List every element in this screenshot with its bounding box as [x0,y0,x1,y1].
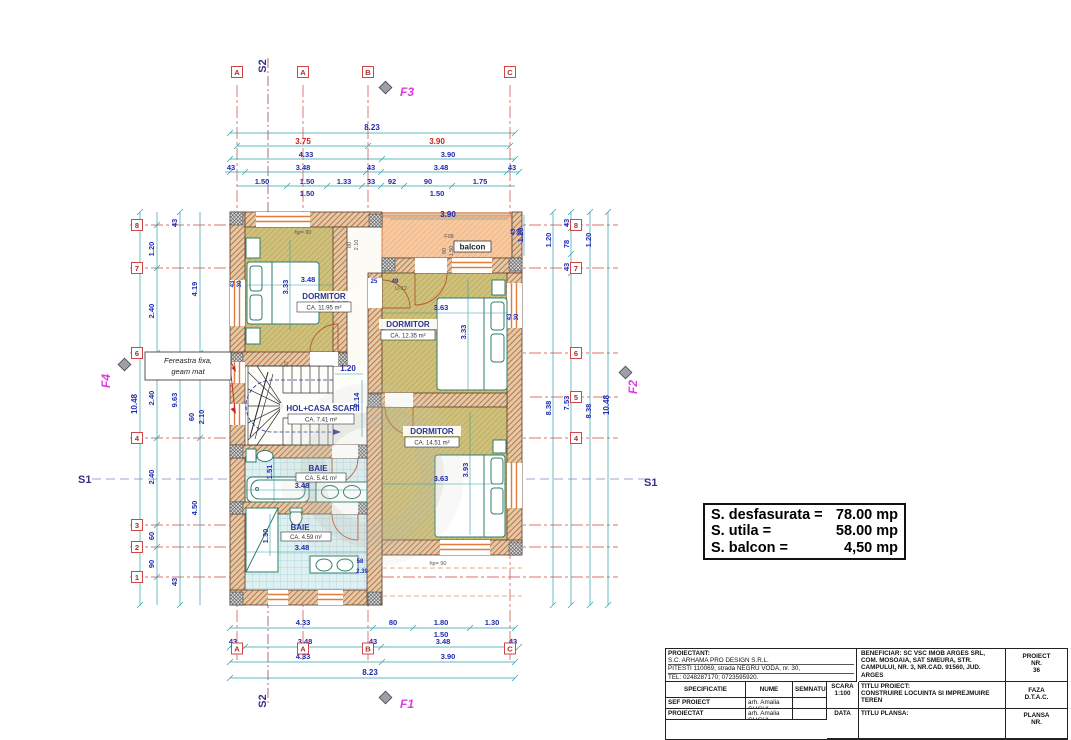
faza-label: FAZA [1028,687,1044,694]
proiectant-label: PROIECTANT: [668,650,710,657]
door-code: U-12 [395,286,407,292]
summary-value: 78.00 mp [836,507,898,523]
room-area: CA. 14.51 m² [414,441,449,447]
dim-label: 1.80 [434,618,449,627]
dim-label: 3.33 [459,325,468,340]
dim-label: 60 [147,532,156,540]
marker-f2-label: F2 [626,380,640,394]
dim-label: 2.10 [197,410,206,425]
dim-label: 2.40 [147,470,156,485]
dim-label: 43 [562,263,571,271]
dim-label: 3.90 [429,137,445,146]
faza-value: D.T.A.C. [1025,694,1049,701]
row-sef-signature [793,698,827,709]
grid-bubble-label: A [300,68,306,77]
proiect-nr-cell: PROIECT NR. 36 [1006,649,1067,682]
note-line-1: Fereastra fixa, [164,356,212,365]
room-area: CA. 11.95 m² [307,306,342,312]
wall-tag: 2.39 [356,569,368,575]
dim-label: 4.19 [190,282,199,297]
grid-bubble-label: 6 [135,349,139,358]
dim-label: 90 [147,560,156,568]
marker-s1-left-label: S1 [78,474,91,486]
titlu-proiect-line: TEREN [861,697,882,704]
grid-bubble-label: B [365,645,371,654]
summary-value: 4,50 mp [844,540,898,556]
dim-label: 8.38 [544,401,553,416]
window-top-dormitor1 [256,212,310,227]
marker-s2-top-label: S2 [257,59,269,72]
room-name: DORMITOR [410,427,454,436]
proiectant-name: S.C. ARHAMA PRO DESIGN S.R.L. [668,657,854,665]
titlu-proiect-cell: TITLU PROIECT: CONSTRUIRE LOCUINTA SI IM… [859,682,1006,709]
dim-label: 43 [227,163,235,172]
wall-tag: 30 [517,228,523,235]
dim-label: 3.90 [441,652,456,661]
grid-bubble-label: 1 [135,573,139,582]
dim-label: 1.30 [261,529,270,544]
col-label: NUME [760,686,779,693]
dim-label: 3.90 [440,210,456,219]
dim-label: 8.23 [364,123,380,132]
grid-bubble-label: 5 [574,393,578,402]
window-f08-label: F08 [444,234,453,240]
wall-tag: 30 [514,313,520,320]
grid-bubble-label: C [507,68,513,77]
dim-label: 3.75 [295,137,311,146]
room-name: DORMITOR [302,292,346,301]
dim-label: 4.33 [299,150,314,159]
drawing-sheet: 8.23 3.75 3.90 4.33 3.90 43 3.48 43 3.48… [0,0,1071,720]
marker-s1-right-label: S1 [644,477,657,489]
window-note: Fereastra fixa, geam mat [145,352,236,414]
dim-label: 10.48 [602,394,611,415]
dim-label: 60 [187,413,196,421]
titlu-plansa-cell: TITLU PLANSA: [859,709,1006,739]
room-area: CA. 5.41 m² [305,476,337,482]
col-nume: NUME [746,682,793,698]
dim-label: 1.20 [584,233,593,248]
window-bottom-baie2-1 [268,590,288,605]
summary-label: S. utila = [711,523,771,539]
dim-label: 3.48 [295,543,310,552]
grid-bubble-label: A [300,645,306,654]
plansa-nr-cell: PLANSA NR. [1006,709,1067,739]
wall-tag: 25 [371,279,378,285]
dim-label: 3.93 [461,463,470,478]
grid-bubble-label: 7 [135,264,139,273]
scara-label: SCARA [831,683,853,690]
plansa-nr-label: NR. [1031,719,1042,726]
grid-bubble-label: C [507,645,513,654]
lower-terrace-outline [382,568,522,596]
dim-label: 3.48 [296,163,311,172]
grid-bubble-label: 8 [135,221,139,230]
dim-label: 43 [562,219,571,227]
scara-value: 1:100 [834,690,850,697]
row-proiectat-signature [793,709,827,720]
wall-tag: 43 [507,313,513,320]
summary-row: S. desfasurata = 78.00 mp [711,507,898,523]
dim-label: 4.50 [190,501,199,516]
dim-label: 2.14 [352,392,361,407]
row-label: PROIECTAT [668,710,703,717]
room-area: CA. 12.35 m² [390,334,425,340]
dim-label: 3.48 [436,637,451,646]
beneficiar-line: SC VSC IMOB ARGES SRL, [903,650,985,657]
window-f08-w: 90 [442,248,448,254]
grid-bubble-label: 2 [135,543,139,552]
marker-f1-label: F1 [400,697,414,711]
summary-label: S. balcon = [711,540,788,556]
door-size-h: 2.10 [354,240,360,251]
window-right-dormitor3 [507,463,522,508]
titlu-proiect-label: TITLU PROIECT: [861,683,910,690]
wall-tag: 58 [357,559,364,565]
stair-riser-count: 27 [284,361,290,367]
grid-bubble-label: 3 [135,521,139,530]
proiectant-phone: TEL: 0248287170; 0723595920. [668,674,758,681]
dim-chains-left [137,209,203,608]
data-label: DATA [834,710,851,717]
dim-label: 8.23 [362,668,378,677]
dim-label: 43 [170,578,179,586]
f4-diamond-icon [118,358,131,371]
grid-bubble-label: 6 [574,349,578,358]
beneficiar-line: ARGES [861,672,883,679]
dim-label: 4.33 [296,618,311,627]
dim-label: 33 [367,177,375,186]
wall-tag: 30 [237,280,243,287]
row-value: arh. Amalia GUGUI [748,699,780,709]
plansa-label: PLANSA [1024,712,1050,719]
dim-label: 1.20 [544,233,553,248]
dim-label: 43 [508,163,516,172]
window-top-dormitor2 [452,258,492,273]
proiectant-address: PITESTI 110069, strada NEGRU VODA, nr. 3… [668,665,854,673]
dim-label: 1.50 [255,177,270,186]
dim-label: 3.48 [295,481,310,490]
row-value: arh. Amalia GUGUI [748,710,780,720]
beneficiar-line: COM. MOSOAIA, SAT SMEURA, STR. [861,657,972,664]
f2-diamond-icon [619,366,632,379]
window-bottom-dormitor3 [440,540,490,555]
room-area: CA. 7.41 m² [305,418,337,424]
marker-s2-bottom-label: S2 [257,694,269,707]
marker-f4-label: F4 [99,374,113,388]
dim-label: 1.50 [300,177,315,186]
summary-label: S. desfasurata = [711,507,823,523]
summary-row: S. balcon = 4,50 mp [711,540,898,556]
parapet-note: hp= 90 [295,230,312,236]
col-label: SPECIFICATIE [684,686,727,693]
grid-bubble-label: A [234,645,240,654]
title-block: PROIECTANT: S.C. ARHAMA PRO DESIGN S.R.L… [665,648,1068,740]
balcon-label: balcon [460,243,486,252]
titlu-proiect-line: CONSTRUIRE LOCUINTA SI IMPREJMUIRE [861,690,989,697]
note-line-2: geam mat [171,367,205,376]
dim-label: 3.63 [434,303,449,312]
room-name: BAIE [290,523,310,532]
dim-label: 9.63 [170,393,179,408]
window-left-stair-2 [230,404,245,425]
dim-label: 2.40 [147,304,156,319]
col-specificatie: SPECIFICATIE [666,682,746,698]
f1-diamond-icon [379,691,392,704]
dim-label: 1.30 [485,618,500,627]
area-summary-box: S. desfasurata = 78.00 mp S. utila = 58.… [703,503,906,560]
door-size-w: 80 [347,242,353,248]
room-area: CA. 4.59 m² [290,535,322,541]
proiect-nr-label: NR. [1031,660,1042,667]
dim-label: 3.48 [301,275,316,284]
dim-label: 10.48 [130,393,139,414]
room-name: DORMITOR [386,320,430,329]
dim-label: 1.20 [147,242,156,257]
room-name: BAIE [308,464,328,473]
room-name: HOL+CASA SCARII [286,404,359,413]
beneficiar-line: CAMPULUI, NR. 3, NR.CAD. 91560, JUD. [861,664,981,671]
scara-cell: SCARA 1:100 [827,682,859,709]
dim-label: 1.51 [265,465,274,480]
dim-label: 1.33 [337,177,352,186]
dim-label: 2.40 [147,391,156,406]
f3-diamond-icon [379,81,392,94]
faza-cell: FAZA D.T.A.C. [1006,682,1067,709]
dim-label: 1.50 [300,189,315,198]
data-cell: DATA [827,709,859,739]
summary-row: S. utila = 58.00 mp [711,523,898,539]
wall-tag: 49 [392,279,399,285]
grid-bubble-label: B [365,68,371,77]
wall-tag: 43 [230,280,236,287]
marker-f3-label: F3 [400,85,414,99]
window-bottom-baie2-2 [318,590,343,605]
summary-value: 58.00 mp [836,523,898,539]
dim-label: 43 [170,219,179,227]
window-f08-h: 1.50 [449,246,455,257]
beneficiar-label: BENEFICIAR: [861,650,902,657]
grid-bubble-label: 7 [574,264,578,273]
grid-bubble-label: A [234,68,240,77]
col-label: SEMNATURA [795,686,827,693]
proiect-nr-value: 36 [1033,667,1040,674]
dim-label: 90 [424,177,432,186]
dim-label: 43 [367,163,375,172]
dim-label: 3.90 [441,150,456,159]
dim-label: 8.38 [584,404,593,419]
col-semnatura: SEMNATURA [793,682,827,698]
dim-label: 3.63 [434,474,449,483]
parapet-note: hp= 90 [430,561,447,567]
dim-label: 1.75 [473,177,488,186]
dim-label: 78 [562,240,571,248]
proiect-label: PROIECT [1023,653,1051,660]
dim-label: 1.50 [430,189,445,198]
row-proiectat-label: PROIECTAT [666,709,746,720]
dim-label: 3.33 [281,280,290,295]
floor-plan-svg: 8.23 3.75 3.90 4.33 3.90 43 3.48 43 3.48… [0,0,1071,720]
proiectant-cell: PROIECTANT: S.C. ARHAMA PRO DESIGN S.R.L… [666,649,857,682]
row-sef-name: arh. Amalia GUGUI [746,698,793,709]
dim-label: 92 [388,177,396,186]
row-label: SEF PROIECT [668,699,710,706]
beneficiar-cell: BENEFICIAR: SC VSC IMOB ARGES SRL, COM. … [859,649,1006,682]
dim-label: 80 [389,618,397,627]
dim-label: 3.48 [434,163,449,172]
row-proiectat-name: arh. Amalia GUGUI [746,709,793,720]
row-sef-label: SEF PROIECT [666,698,746,709]
titlu-plansa-label: TITLU PLANSA: [861,710,909,717]
dim-label: 7.53 [562,396,571,411]
grid-bubble-label: 8 [574,221,578,230]
dim-label: 1.20 [340,364,356,373]
